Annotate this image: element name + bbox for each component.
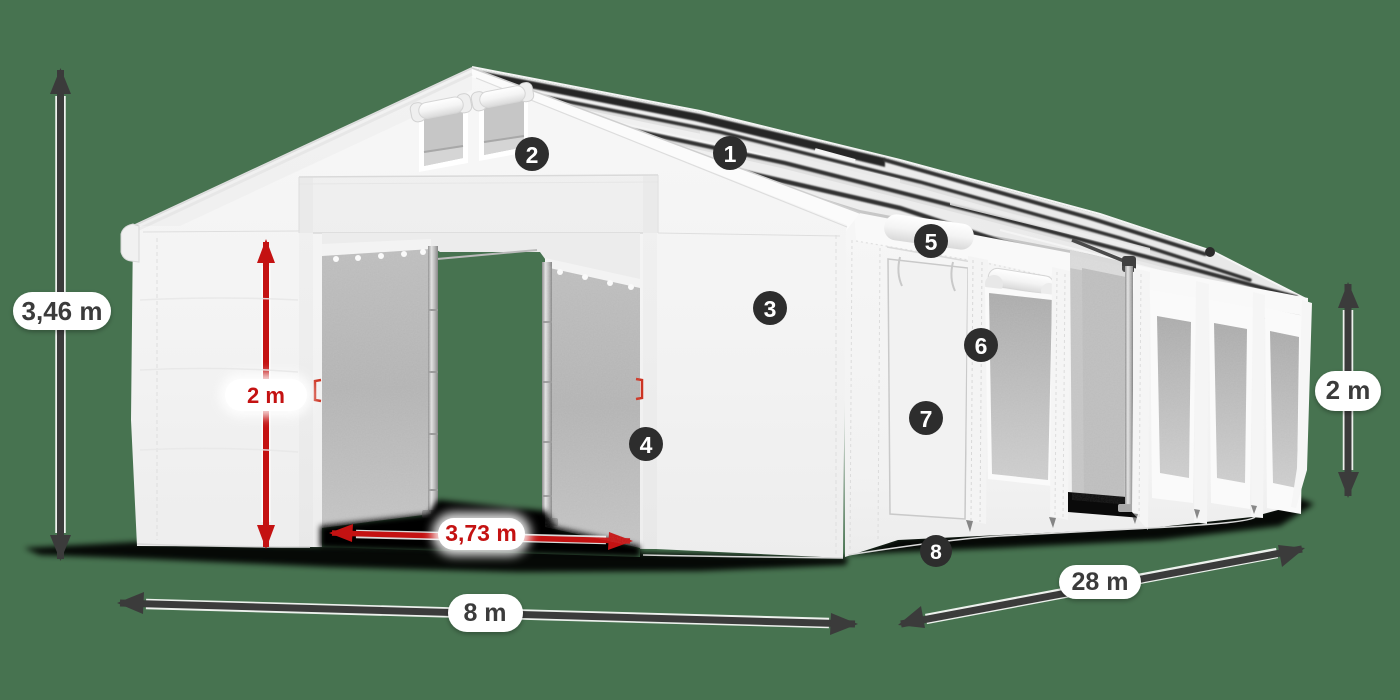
svg-text:3,46 m: 3,46 m: [22, 296, 103, 326]
svg-text:6: 6: [975, 333, 988, 359]
svg-text:1: 1: [724, 141, 737, 167]
svg-text:28 m: 28 m: [1072, 568, 1129, 596]
svg-text:2 m: 2 m: [247, 383, 285, 408]
svg-text:3: 3: [764, 296, 777, 322]
svg-text:3,73 m: 3,73 m: [445, 520, 517, 546]
svg-text:5: 5: [925, 229, 938, 255]
svg-text:8 m: 8 m: [463, 599, 506, 627]
svg-text:7: 7: [920, 406, 933, 432]
svg-text:4: 4: [640, 432, 653, 458]
svg-text:8: 8: [930, 541, 942, 564]
svg-text:2: 2: [526, 142, 539, 168]
svg-text:2 m: 2 m: [1326, 375, 1371, 405]
